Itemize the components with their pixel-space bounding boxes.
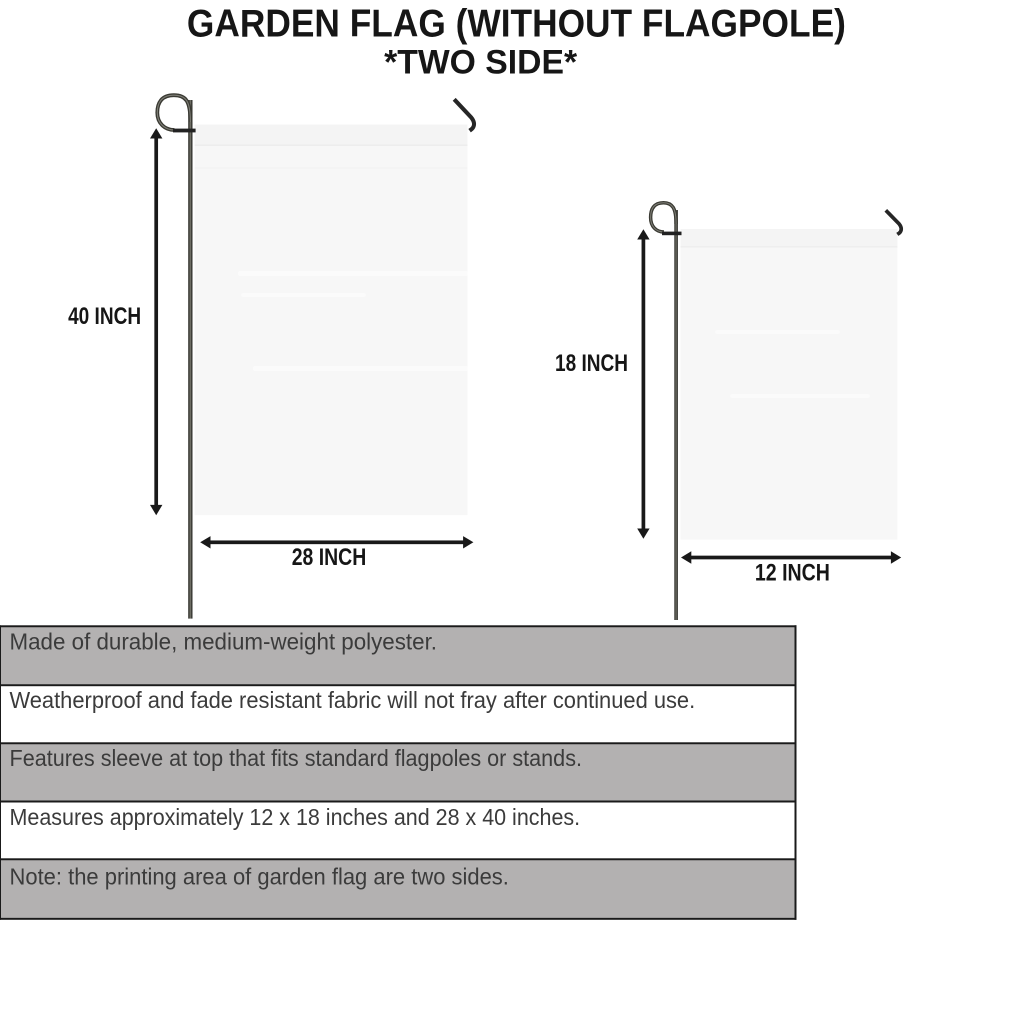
svg-text:*TWO SIDE*: *TWO SIDE* [384,44,578,82]
svg-text:28 INCH: 28 INCH [292,544,367,571]
svg-text:40 INCH: 40 INCH [68,303,141,330]
svg-text:Note: the printing area of gar: Note: the printing area of garden flag a… [10,863,509,889]
svg-text:GARDEN FLAG (WITHOUT FLAGPOLE): GARDEN FLAG (WITHOUT FLAGPOLE) [187,3,846,46]
svg-text:Made of durable, medium-weight: Made of durable, medium-weight polyester… [10,629,438,655]
svg-text:Measures approximately 12 x 18: Measures approximately 12 x 18 inches an… [10,804,581,830]
svg-text:Features sleeve at top that fi: Features sleeve at top that fits standar… [10,745,583,771]
svg-text:12 INCH: 12 INCH [755,560,830,587]
svg-text:Weatherproof and fade resistan: Weatherproof and fade resistant fabric w… [10,687,696,713]
svg-text:18 INCH: 18 INCH [555,350,628,377]
